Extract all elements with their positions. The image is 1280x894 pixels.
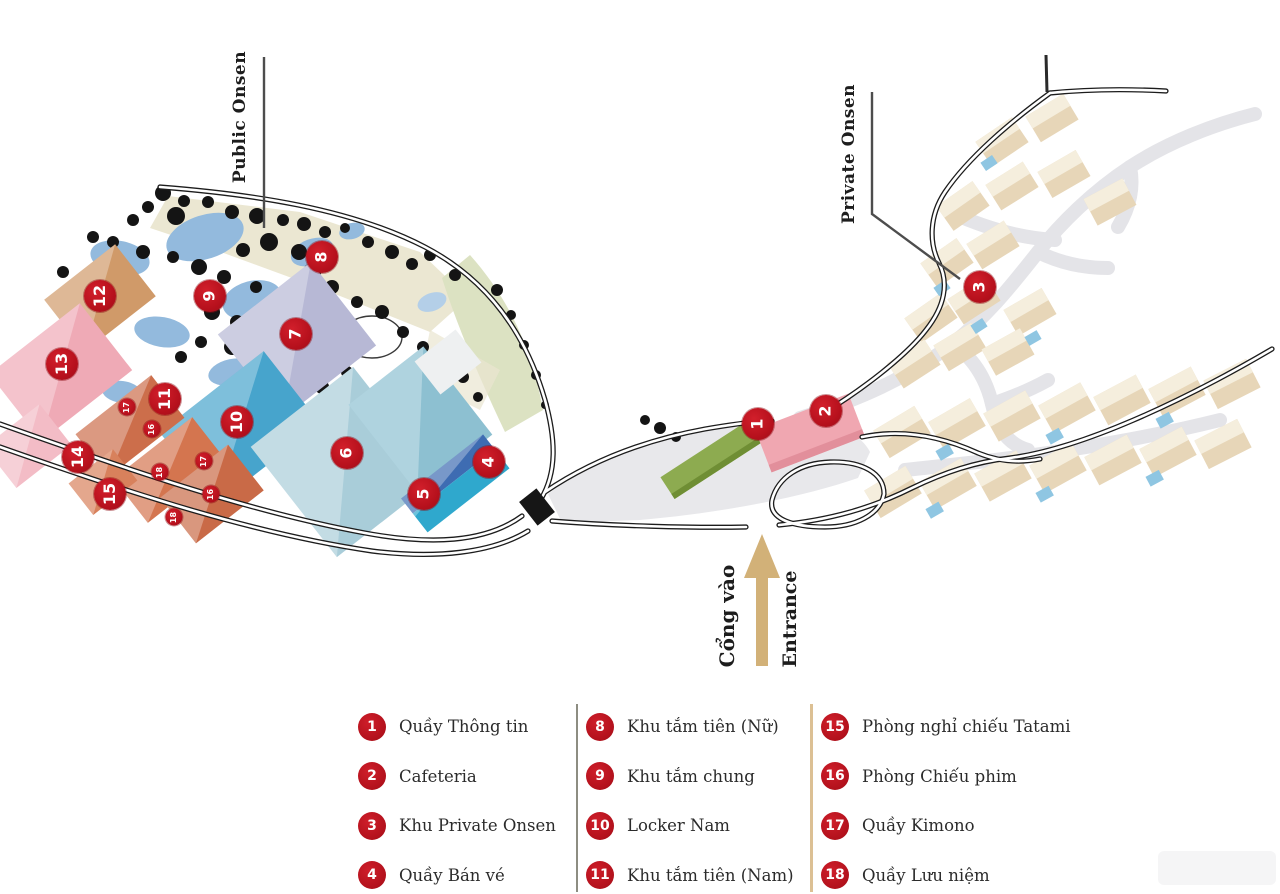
map-marker-number: 12	[92, 285, 108, 307]
entrance-label-english: Entrance	[779, 571, 801, 668]
legend-label: Quầy Lưu niệm	[862, 866, 990, 885]
legend-label: Quầy Kimono	[862, 816, 975, 835]
legend-item-3: 3Khu Private Onsen	[358, 801, 568, 851]
legend-item-15: 15Phòng nghỉ chiếu Tatami	[821, 702, 1081, 752]
legend-label: Locker Nam	[627, 816, 730, 835]
legend-number-badge: 8	[586, 713, 614, 741]
map-marker-4: 4	[473, 446, 505, 478]
legend-item-17: 17Quầy Kimono	[821, 801, 1081, 851]
map-marker-number: 6	[339, 447, 355, 458]
legend-label: Cafeteria	[399, 767, 477, 786]
legend-label: Quầy Thông tin	[399, 717, 528, 736]
map-marker-11: 11	[149, 383, 181, 415]
public-onsen-label: Public Onsen	[230, 51, 250, 183]
legend-item-16: 16Phòng Chiếu phim	[821, 752, 1081, 802]
map-marker-number: 9	[202, 290, 218, 301]
map-marker-number: 16	[207, 488, 215, 499]
map-marker-18: 18	[152, 464, 169, 481]
legend-number-badge: 17	[821, 812, 849, 840]
legend-column-2: 8Khu tắm tiên (Nữ)9Khu tắm chung10Locker…	[586, 702, 802, 894]
legend-number-badge: 15	[821, 713, 849, 741]
map-marker-1: 1	[742, 408, 774, 440]
map-marker-18: 18	[166, 509, 183, 526]
legend-column-1: 1Quầy Thông tin2Cafeteria3Khu Private On…	[358, 702, 568, 894]
map-marker-17: 17	[119, 399, 136, 416]
legend-number-badge: 1	[358, 713, 386, 741]
map-marker-number: 18	[156, 466, 164, 477]
private-onsen-label: Private Onsen	[839, 84, 859, 224]
legend-label: Khu Private Onsen	[399, 816, 556, 835]
map-marker-9: 9	[194, 280, 226, 312]
map-marker-13: 13	[46, 348, 78, 380]
legend-item-11: 11Khu tắm tiên (Nam)	[586, 851, 802, 894]
map-marker-number: 10	[229, 411, 245, 433]
legend-divider-1	[576, 704, 578, 892]
legend-number-badge: 10	[586, 812, 614, 840]
map-marker-number: 13	[54, 353, 70, 375]
map-marker-number: 2	[818, 405, 834, 416]
legend-column-3: 15Phòng nghỉ chiếu Tatami16Phòng Chiếu p…	[821, 702, 1081, 894]
map-marker-16: 16	[144, 421, 161, 438]
legend-number-badge: 4	[358, 861, 386, 889]
legend-number-badge: 3	[358, 812, 386, 840]
map-marker-number: 15	[102, 483, 118, 505]
legend-item-8: 8Khu tắm tiên (Nữ)	[586, 702, 802, 752]
legend-divider-2	[810, 704, 813, 892]
map-marker-number: 17	[200, 455, 208, 466]
map-marker-number: 5	[416, 488, 432, 499]
legend-number-badge: 11	[586, 861, 614, 889]
legend-number-badge: 18	[821, 861, 849, 889]
legend-item-2: 2Cafeteria	[358, 752, 568, 802]
map-marker-number: 16	[148, 423, 156, 434]
legend-item-9: 9Khu tắm chung	[586, 752, 802, 802]
map-marker-number: 7	[288, 328, 304, 339]
map-marker-number: 11	[157, 388, 173, 410]
entrance-arrow	[744, 534, 780, 666]
map-marker-number: 3	[972, 281, 988, 292]
map-marker-7: 7	[280, 318, 312, 350]
map-marker-16: 16	[203, 486, 220, 503]
map-marker-15: 15	[94, 478, 126, 510]
legend-label: Khu tắm tiên (Nam)	[627, 866, 794, 885]
map-marker-number: 8	[314, 251, 330, 262]
map-marker-12: 12	[84, 280, 116, 312]
map-marker-17: 17	[196, 453, 213, 470]
map-marker-number: 17	[123, 401, 131, 412]
map-marker-8: 8	[306, 241, 338, 273]
legend-number-badge: 9	[586, 762, 614, 790]
map-marker-number: 14	[70, 446, 86, 468]
map-marker-10: 10	[221, 406, 253, 438]
legend-label: Khu tắm chung	[627, 767, 755, 786]
legend-label: Quầy Bán vé	[399, 866, 505, 885]
map-marker-5: 5	[408, 478, 440, 510]
legend: 1Quầy Thông tin2Cafeteria3Khu Private On…	[358, 702, 1081, 894]
map-marker-3: 3	[964, 271, 996, 303]
watermark	[1158, 851, 1276, 885]
legend-item-1: 1Quầy Thông tin	[358, 702, 568, 752]
map-marker-14: 14	[62, 441, 94, 473]
legend-item-18: 18Quầy Lưu niệm	[821, 851, 1081, 894]
legend-item-10: 10Locker Nam	[586, 801, 802, 851]
legend-label: Khu tắm tiên (Nữ)	[627, 717, 779, 736]
map-marker-number: 1	[750, 418, 766, 429]
legend-number-badge: 2	[358, 762, 386, 790]
villa-buildings	[864, 94, 1260, 519]
map-marker-number: 4	[481, 456, 497, 467]
legend-item-4: 4Quầy Bán vé	[358, 851, 568, 894]
legend-label: Phòng Chiếu phim	[862, 767, 1017, 786]
legend-number-badge: 16	[821, 762, 849, 790]
map-marker-2: 2	[810, 395, 842, 427]
entrance-label-vietnamese: Cổng vào	[715, 565, 739, 668]
map-marker-number: 18	[170, 511, 178, 522]
legend-label: Phòng nghỉ chiếu Tatami	[862, 717, 1071, 736]
resort-map: Public Onsen Private Onsen Cổng vào Entr…	[0, 0, 1280, 894]
map-marker-6: 6	[331, 437, 363, 469]
